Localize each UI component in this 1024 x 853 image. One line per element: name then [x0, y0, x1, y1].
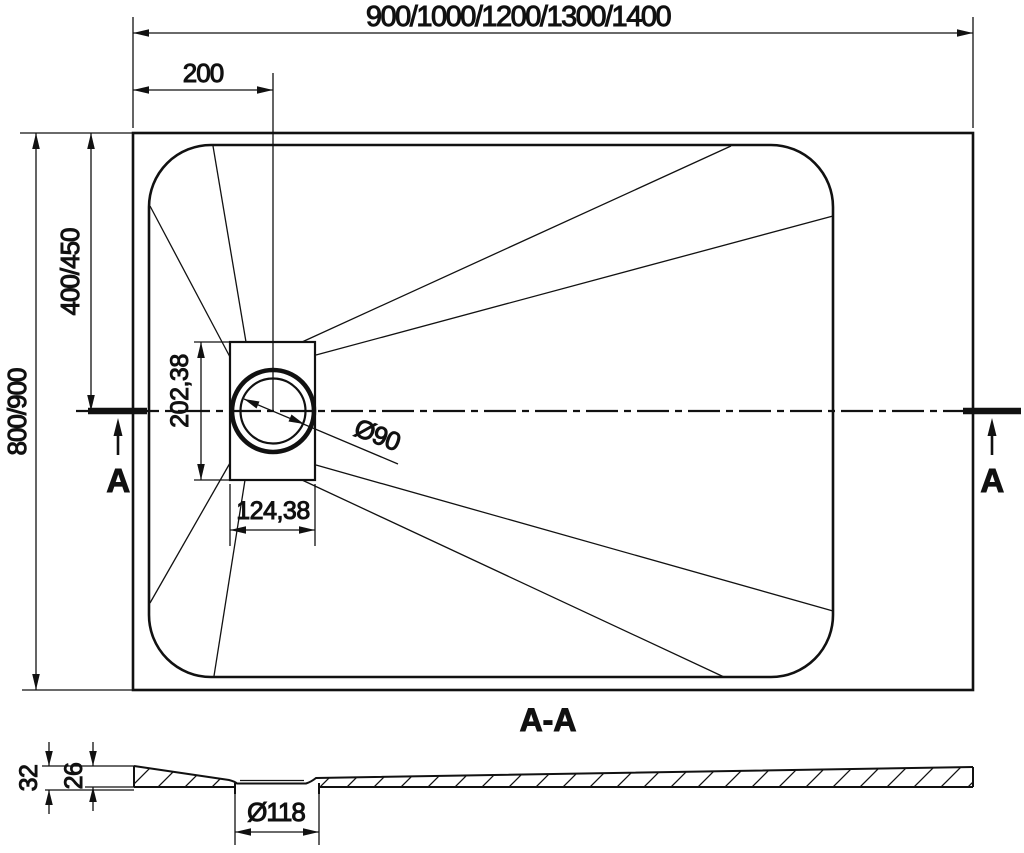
dim-width-label: 800/900 [2, 368, 32, 456]
dim-length-label: 900/1000/1200/1300/1400 [366, 1, 671, 33]
arrowhead-down-icon [197, 464, 205, 480]
dim-32-label: 32 [15, 765, 43, 792]
shower-tray-drawing: 900/1000/1200/1300/1400 200 400/450 800/… [0, 0, 1024, 853]
arrowhead-left-icon [133, 86, 149, 94]
crease-line [302, 146, 731, 342]
arrowhead-right-icon [299, 526, 315, 534]
arrowhead-up-icon [87, 133, 95, 149]
arrowhead-right-icon [257, 86, 273, 94]
arrowhead-left-icon [133, 29, 149, 37]
dim-26-label: 26 [60, 763, 88, 790]
arrowhead-diameter-icon [244, 399, 260, 409]
arrowhead-up-icon [89, 787, 97, 802]
arrowhead-left-icon [235, 828, 251, 836]
section-arrow-up-icon [988, 418, 997, 436]
dim-half-width-label: 400/450 [55, 228, 85, 316]
dim-200-label: 200 [183, 58, 224, 88]
section-marker-right-label: A [980, 462, 1003, 499]
arrowhead-down-icon [45, 751, 53, 766]
section-marker-left-label: A [106, 462, 129, 499]
arrowhead-up-icon [32, 133, 40, 149]
top-view: 900/1000/1200/1300/1400 200 400/450 800/… [2, 1, 1021, 690]
arrowhead-right-icon [957, 29, 973, 37]
dim-drain-diameter-label: Ø90 [350, 412, 404, 457]
arrowhead-up-icon [197, 342, 205, 358]
arrowhead-right-icon [303, 828, 319, 836]
crease-line [302, 480, 724, 677]
dim-recess-diameter-label: Ø118 [247, 797, 305, 827]
crease-line [150, 206, 230, 357]
crease-line [150, 463, 230, 603]
arrowhead-diameter-icon [289, 415, 305, 425]
section-arrow-up-icon [114, 418, 123, 436]
section-view: A-A [15, 702, 973, 845]
drawing-canvas: 900/1000/1200/1300/1400 200 400/450 800/… [0, 0, 1024, 853]
dim-drain-x-label: 124,38 [236, 497, 309, 525]
dim-drain-y-label: 202,38 [166, 354, 194, 427]
dimension-lines [20, 17, 973, 690]
section-dimension-lines [42, 742, 319, 845]
section-cut-marks [88, 411, 1021, 455]
arrowhead-up-icon [45, 790, 53, 805]
arrowhead-down-icon [32, 674, 40, 690]
section-title: A-A [520, 702, 577, 738]
arrowhead-down-icon [89, 751, 97, 766]
crease-line [213, 146, 246, 342]
crease-line [316, 465, 833, 611]
crease-line [316, 216, 833, 355]
